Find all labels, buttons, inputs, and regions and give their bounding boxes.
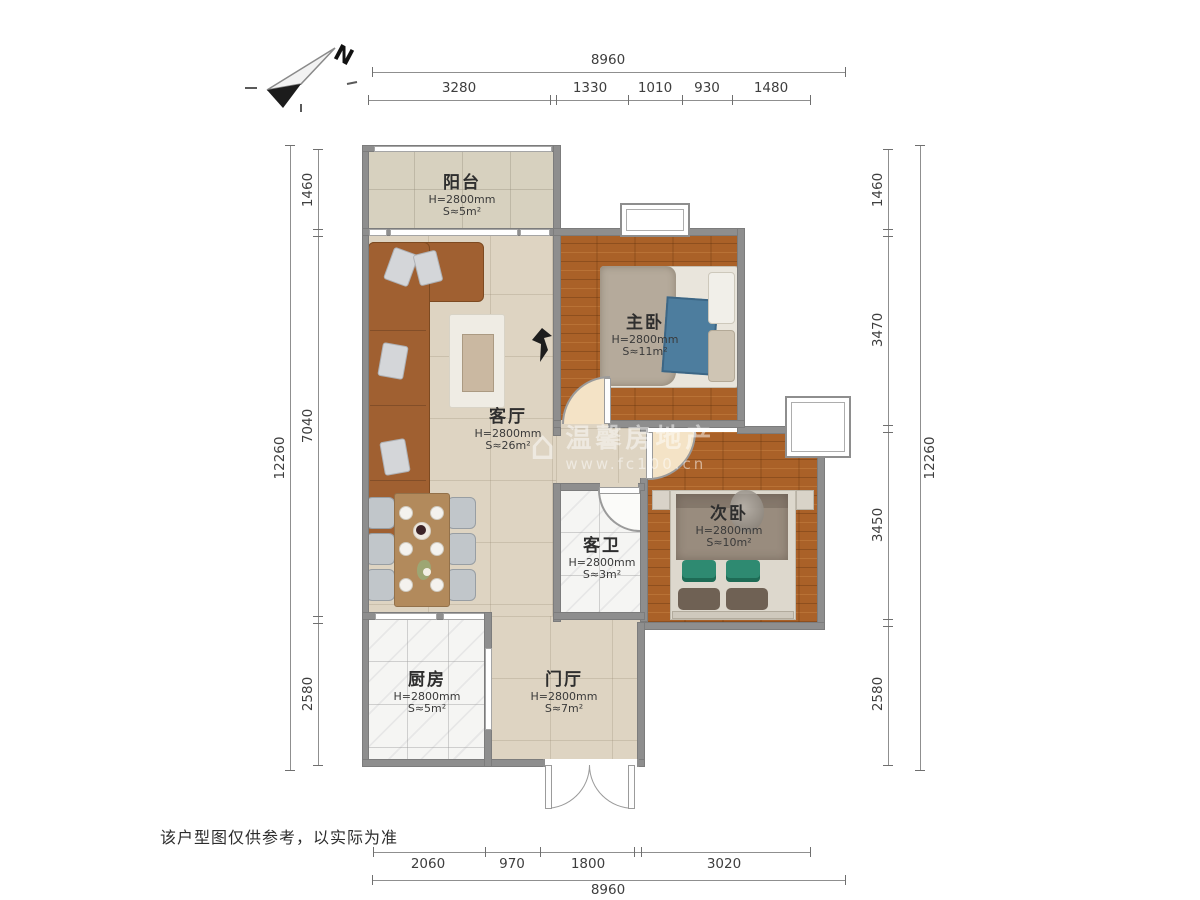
- dining-chair: [366, 533, 395, 565]
- tick: [368, 95, 369, 105]
- balcony-area: S≈5m²: [429, 206, 496, 219]
- plate: [430, 542, 444, 556]
- table-flower: [423, 568, 431, 576]
- second-bed-green-pillow: [726, 560, 760, 582]
- tick: [883, 149, 893, 150]
- tick: [810, 95, 811, 105]
- tick: [373, 847, 374, 857]
- sofa-seam: [370, 405, 426, 406]
- sofa-pillow: [379, 438, 411, 476]
- tick: [845, 67, 846, 77]
- tick: [313, 236, 323, 237]
- plate: [430, 578, 444, 592]
- dim-line-right-segments: [888, 149, 889, 765]
- tick: [313, 623, 323, 624]
- tick: [313, 149, 323, 150]
- dim-top-0: 3280: [442, 80, 476, 96]
- master-bay-window: [620, 203, 690, 237]
- master-bed-pillow: [708, 272, 735, 324]
- dim-line-bottom-total: [372, 880, 845, 881]
- floor-plan-canvas: 阳台 H=2800mm S≈5m² 客厅 H=2800mm S≈26m² 主卧 …: [0, 0, 1200, 900]
- entry-door-leaf: [545, 765, 552, 809]
- wall-bath-bottom: [553, 612, 645, 620]
- svg-text:N: N: [329, 41, 357, 72]
- wall-master-right: [737, 228, 745, 434]
- label-balcony: 阳台 H=2800mm S≈5m²: [429, 174, 496, 219]
- tick: [485, 847, 486, 857]
- second-name: 次卧: [696, 505, 763, 525]
- dim-left-total: 12260: [272, 437, 288, 480]
- dark-dish-food: [416, 525, 426, 535]
- label-living: 客厅 H=2800mm S≈26m²: [475, 408, 542, 453]
- kitchen-door-slider: [485, 648, 492, 730]
- tick: [372, 67, 373, 77]
- bird-decor-icon: [530, 326, 554, 364]
- second-bed-nightstand: [652, 490, 670, 510]
- dining-chair: [447, 533, 476, 565]
- second-bed-green-pillow: [682, 560, 716, 582]
- tick: [285, 770, 295, 771]
- sofa-seam: [370, 480, 426, 481]
- master-door-leaf: [604, 378, 611, 424]
- second-door-leaf: [646, 432, 653, 479]
- kitchen-pass-window: [443, 613, 487, 620]
- tick: [634, 847, 635, 857]
- dim-left-1: 7040: [300, 409, 316, 443]
- tick: [313, 765, 323, 766]
- tick: [845, 875, 846, 885]
- dining-chair: [366, 569, 395, 601]
- dim-top-1: 1330: [573, 80, 607, 96]
- foyer-area: S≈7m²: [531, 703, 598, 716]
- wall-second-bottom: [637, 622, 825, 630]
- dim-bottom-1: 970: [499, 856, 525, 872]
- plate: [430, 506, 444, 520]
- wall-left-outer: [362, 145, 369, 767]
- dim-line-left-segments: [318, 149, 319, 765]
- balcony-name: 阳台: [429, 174, 496, 194]
- plate: [399, 506, 413, 520]
- kitchen-pass-window: [375, 613, 437, 620]
- dining-chair: [366, 497, 395, 529]
- tick: [313, 616, 323, 617]
- east-bay-window: [785, 396, 851, 458]
- dim-top-4: 1480: [754, 80, 788, 96]
- tick: [810, 847, 811, 857]
- dim-top-3: 930: [694, 80, 720, 96]
- plate: [399, 542, 413, 556]
- label-second: 次卧 H=2800mm S≈10m²: [696, 505, 763, 550]
- wall-balcony-master-divider: [553, 145, 561, 436]
- dim-line-left-total: [290, 145, 291, 770]
- second-bed-brown-pillow: [726, 588, 768, 610]
- tick: [883, 619, 893, 620]
- foyer-name: 门厅: [531, 671, 598, 691]
- balcony-door-track: [390, 229, 518, 236]
- tick: [883, 425, 893, 426]
- tick: [915, 145, 925, 146]
- tick: [915, 770, 925, 771]
- label-master: 主卧 H=2800mm S≈11m²: [612, 314, 679, 359]
- tick: [883, 626, 893, 627]
- tick: [313, 229, 323, 230]
- dim-line-top-segments: [368, 100, 810, 101]
- tick: [556, 95, 557, 105]
- dim-line-right-total: [920, 145, 921, 770]
- balcony-window-end: [520, 229, 550, 236]
- bath-area: S≈3m²: [569, 569, 636, 582]
- second-bed-headboard: [672, 611, 794, 619]
- tick: [883, 236, 893, 237]
- kitchen-area: S≈5m²: [394, 703, 461, 716]
- dim-right-total: 12260: [922, 437, 938, 480]
- dining-chair: [447, 497, 476, 529]
- dim-line-bottom-segments: [373, 852, 810, 853]
- dining-chair: [447, 569, 476, 601]
- dim-right-1: 3470: [870, 313, 886, 347]
- wall-foyer-right: [637, 622, 645, 767]
- dim-top-2: 1010: [638, 80, 672, 96]
- coffee-table: [462, 334, 494, 392]
- dim-right-2: 3450: [870, 508, 886, 542]
- floor-hall-vestibule: [556, 428, 644, 486]
- balcony-window-end: [369, 229, 387, 236]
- disclaimer-text: 该户型图仅供参考，以实际为准: [160, 824, 398, 848]
- dim-bottom-0: 2060: [411, 856, 445, 872]
- tick: [732, 95, 733, 105]
- tick: [628, 95, 629, 105]
- dim-bottom-2: 1800: [571, 856, 605, 872]
- master-bed-pillow: [708, 330, 735, 382]
- kitchen-name: 厨房: [394, 671, 461, 691]
- tick: [550, 95, 551, 105]
- tick: [682, 95, 683, 105]
- plate: [399, 578, 413, 592]
- second-bed-brown-pillow: [678, 588, 720, 610]
- label-foyer: 门厅 H=2800mm S≈7m²: [531, 671, 598, 716]
- tick: [540, 847, 541, 857]
- master-area: S≈11m²: [612, 346, 679, 359]
- bath-door-leaf: [599, 487, 640, 494]
- dim-line-top-total: [372, 72, 845, 73]
- label-bath: 客卫 H=2800mm S≈3m²: [569, 537, 636, 582]
- dim-right-3: 2580: [870, 677, 886, 711]
- entry-door-leaf: [628, 765, 635, 809]
- living-area: S≈26m²: [475, 440, 542, 453]
- dim-bottom-3: 3020: [707, 856, 741, 872]
- dim-right-0: 1460: [870, 173, 886, 207]
- balcony-window: [374, 146, 552, 152]
- north-arrow-icon: N: [243, 32, 363, 112]
- bath-name: 客卫: [569, 537, 636, 557]
- tick: [372, 875, 373, 885]
- living-name: 客厅: [475, 408, 542, 428]
- tick: [285, 145, 295, 146]
- tick: [883, 229, 893, 230]
- tick: [883, 432, 893, 433]
- dim-left-0: 1460: [300, 173, 316, 207]
- sofa-seam: [370, 330, 426, 331]
- second-bed-nightstand: [796, 490, 814, 510]
- dim-left-2: 2580: [300, 677, 316, 711]
- tick: [883, 765, 893, 766]
- dim-top-total: 8960: [591, 52, 625, 68]
- wall-bath-left: [553, 483, 561, 622]
- second-area: S≈10m²: [696, 537, 763, 550]
- master-name: 主卧: [612, 314, 679, 334]
- label-kitchen: 厨房 H=2800mm S≈5m²: [394, 671, 461, 716]
- tick: [641, 847, 642, 857]
- dim-bottom-total: 8960: [591, 882, 625, 898]
